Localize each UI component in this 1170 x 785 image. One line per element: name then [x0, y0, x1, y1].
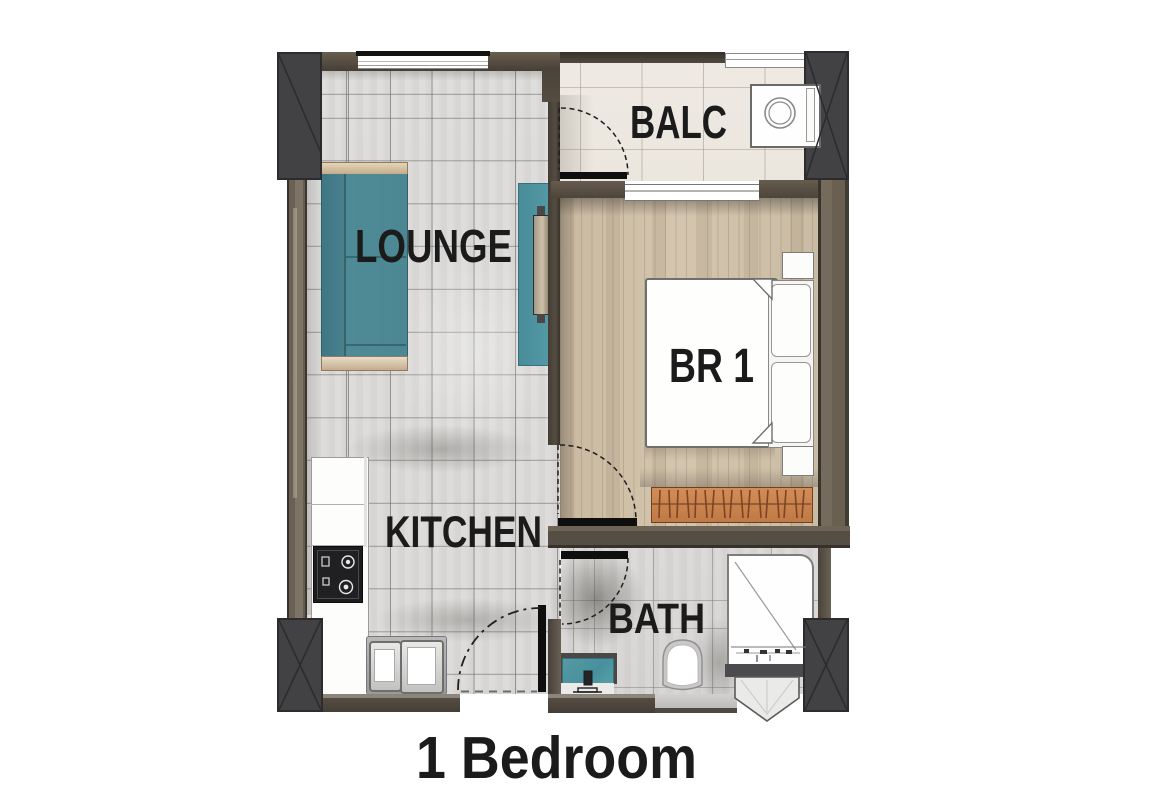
svg-text:BALC: BALC — [630, 96, 727, 148]
svg-text:BR 1: BR 1 — [669, 340, 754, 393]
svg-text:KITCHEN: KITCHEN — [385, 508, 542, 557]
svg-text:LOUNGE: LOUNGE — [355, 220, 512, 272]
svg-text:1 Bedroom: 1 Bedroom — [416, 725, 697, 785]
svg-text:BATH: BATH — [608, 595, 705, 643]
